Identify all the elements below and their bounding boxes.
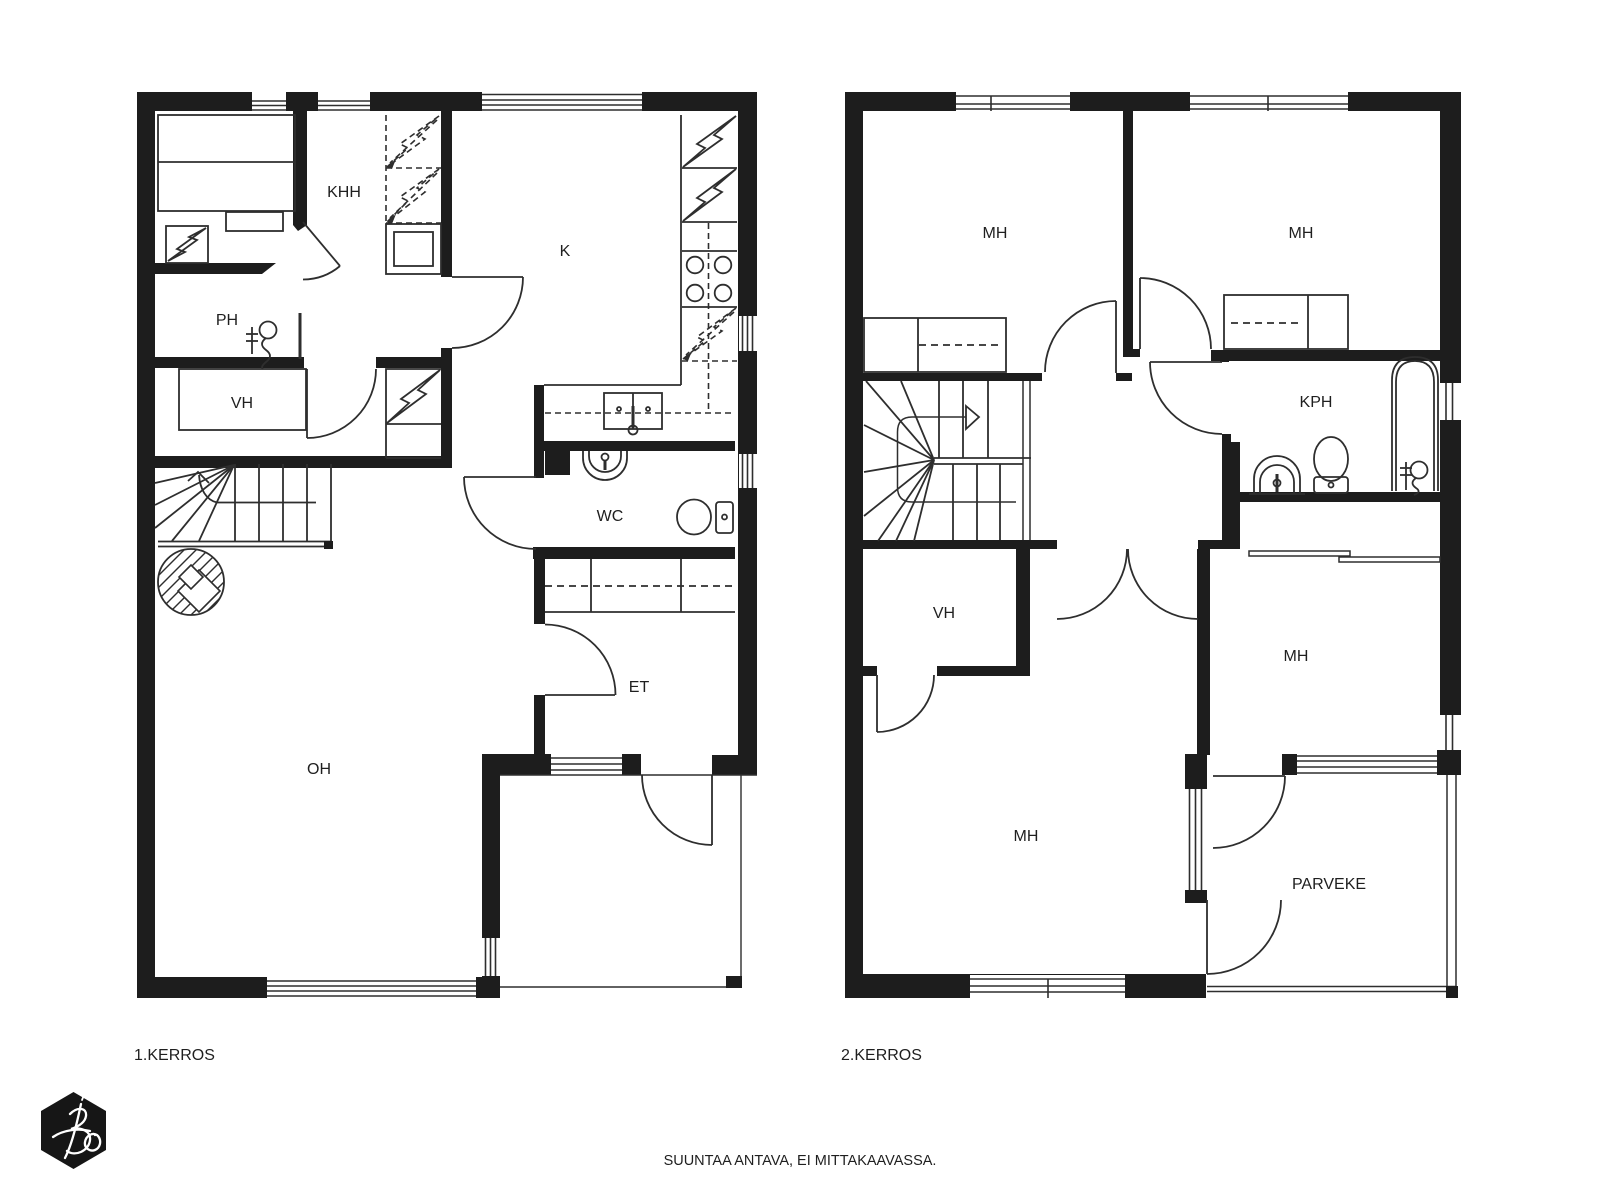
svg-text:MH: MH: [1289, 225, 1314, 242]
svg-text:WC: WC: [597, 508, 624, 525]
svg-text:2.KERROS: 2.KERROS: [841, 1047, 922, 1064]
svg-text:KPH: KPH: [1300, 394, 1333, 411]
svg-text:VH: VH: [933, 605, 955, 622]
svg-text:1.KERROS: 1.KERROS: [134, 1047, 215, 1064]
svg-text:MH: MH: [1284, 648, 1309, 665]
svg-text:KHH: KHH: [327, 184, 361, 201]
svg-text:K: K: [560, 243, 571, 260]
svg-text:ET: ET: [629, 679, 650, 696]
svg-text:PH: PH: [216, 312, 238, 329]
svg-text:SUUNTAA ANTAVA, EI MITTAKAAVAS: SUUNTAA ANTAVA, EI MITTAKAAVASSA.: [664, 1153, 937, 1169]
svg-text:MH: MH: [983, 225, 1008, 242]
svg-text:MH: MH: [1014, 828, 1039, 845]
svg-text:OH: OH: [307, 761, 331, 778]
svg-text:VH: VH: [231, 395, 253, 412]
svg-text:PARVEKE: PARVEKE: [1292, 876, 1366, 893]
